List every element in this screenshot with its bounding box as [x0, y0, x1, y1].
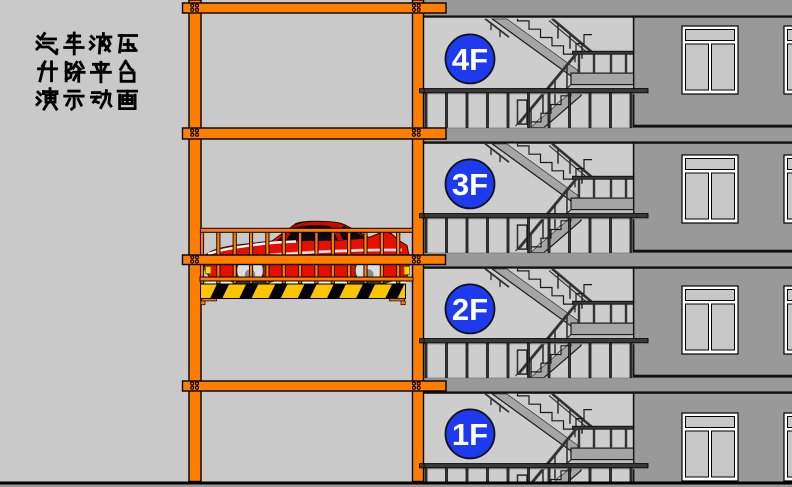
svg-text:2F: 2F — [452, 292, 488, 327]
svg-text:1F: 1F — [452, 417, 488, 452]
svg-text:3F: 3F — [452, 167, 488, 202]
svg-text:4F: 4F — [452, 42, 488, 77]
